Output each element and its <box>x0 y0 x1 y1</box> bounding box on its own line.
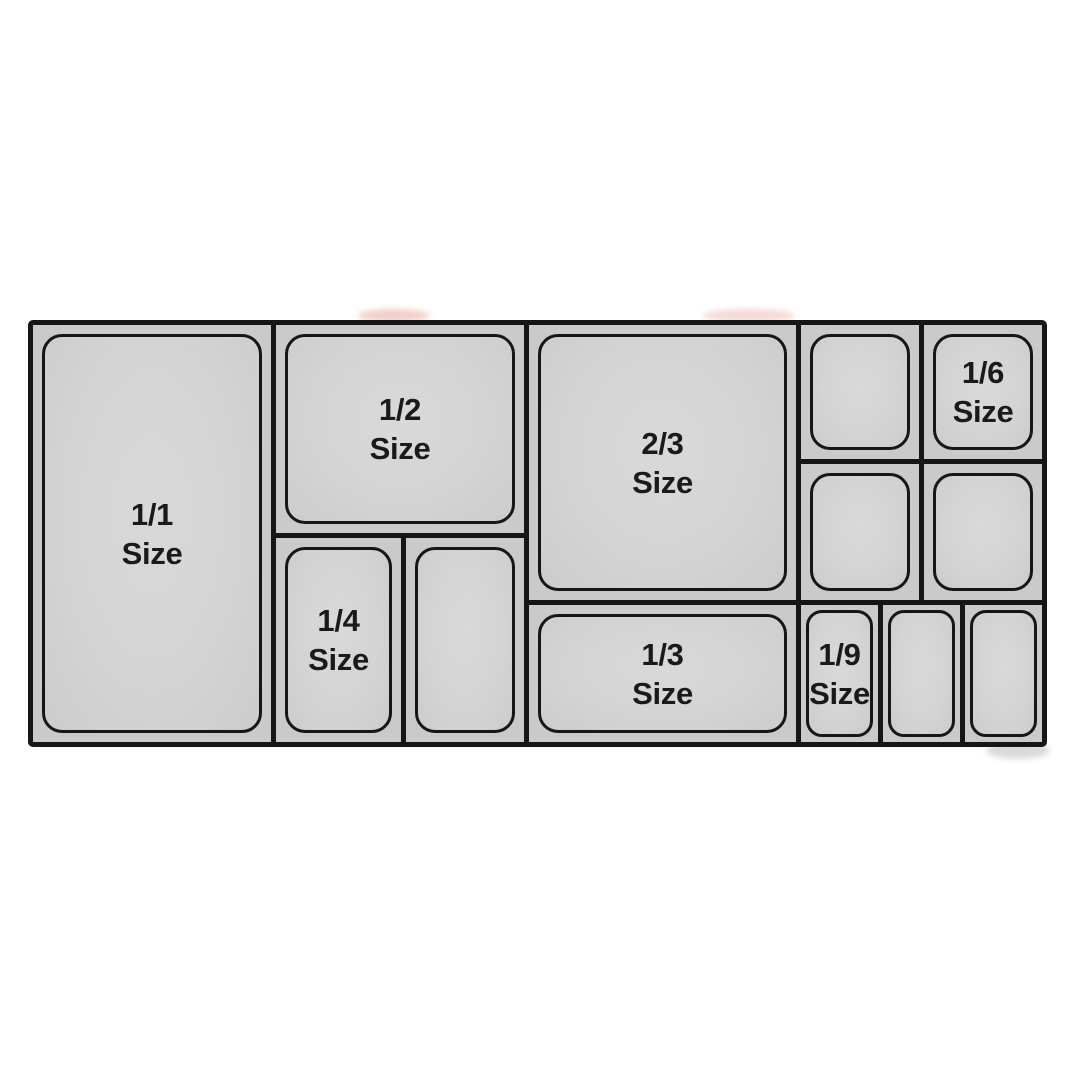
pan-1-3-label-line2: Size <box>632 674 693 713</box>
pan-2-3-label: 2/3 Size <box>529 325 796 600</box>
pan-1-6-unlabeled-top-rim <box>810 334 910 450</box>
pan-1-3-label-line1: 1/3 <box>641 635 683 674</box>
pan-1-9-label: 1/9 Size <box>801 605 878 742</box>
pan-1-2-label-line2: Size <box>370 429 431 468</box>
pan-1-6-unlabeled-middle-left-rim <box>810 473 910 591</box>
pan-1-1-label-line2: Size <box>122 534 183 573</box>
pan-1-4-label-line1: 1/4 <box>317 601 359 640</box>
pan-1-1-label: 1/1 Size <box>33 325 271 742</box>
pan-1-1-label-line1: 1/1 <box>131 495 173 534</box>
pan-1-1: 1/1 Size <box>33 325 271 742</box>
pan-1-2-label: 1/2 Size <box>276 325 524 533</box>
pan-1-9-label-line2: Size <box>809 674 870 713</box>
gastronorm-size-grid: 1/1 Size 1/2 Size 1/4 Size 2/3 <box>28 320 1047 747</box>
pan-1-4: 1/4 Size <box>276 538 401 742</box>
pan-1-6-unlabeled-middle-left <box>801 464 919 600</box>
pan-2-3: 2/3 Size <box>529 325 796 600</box>
pan-2-3-label-line2: Size <box>632 463 693 502</box>
pan-1-4-unlabeled <box>406 538 524 742</box>
pan-1-3: 1/3 Size <box>529 605 796 742</box>
pan-1-9-unlabeled-middle <box>883 605 960 742</box>
pan-1-9-unlabeled-middle-rim <box>888 610 955 737</box>
pan-1-6-unlabeled-middle-right-rim <box>933 473 1033 591</box>
pan-1-6-unlabeled-middle-right <box>924 464 1042 600</box>
pan-1-2-label-line1: 1/2 <box>379 390 421 429</box>
pan-1-6: 1/6 Size <box>924 325 1042 459</box>
pan-1-4-label: 1/4 Size <box>276 538 401 742</box>
pan-1-6-label-line2: Size <box>953 392 1014 431</box>
pan-1-9: 1/9 Size <box>801 605 878 742</box>
pan-1-3-label: 1/3 Size <box>529 605 796 742</box>
pan-1-6-unlabeled-top <box>801 325 919 459</box>
pan-size-diagram-canvas: 1/1 Size 1/2 Size 1/4 Size 2/3 <box>0 0 1080 1080</box>
pan-1-9-label-line1: 1/9 <box>818 635 860 674</box>
pan-1-4-unlabeled-rim <box>415 547 515 733</box>
pan-1-4-label-line2: Size <box>308 640 369 679</box>
pan-1-9-unlabeled-right-rim <box>970 610 1037 737</box>
pan-1-6-label: 1/6 Size <box>924 325 1042 459</box>
pan-2-3-label-line1: 2/3 <box>641 424 683 463</box>
pan-1-9-unlabeled-right <box>965 605 1042 742</box>
pan-1-6-label-line1: 1/6 <box>962 353 1004 392</box>
pan-1-2: 1/2 Size <box>276 325 524 533</box>
